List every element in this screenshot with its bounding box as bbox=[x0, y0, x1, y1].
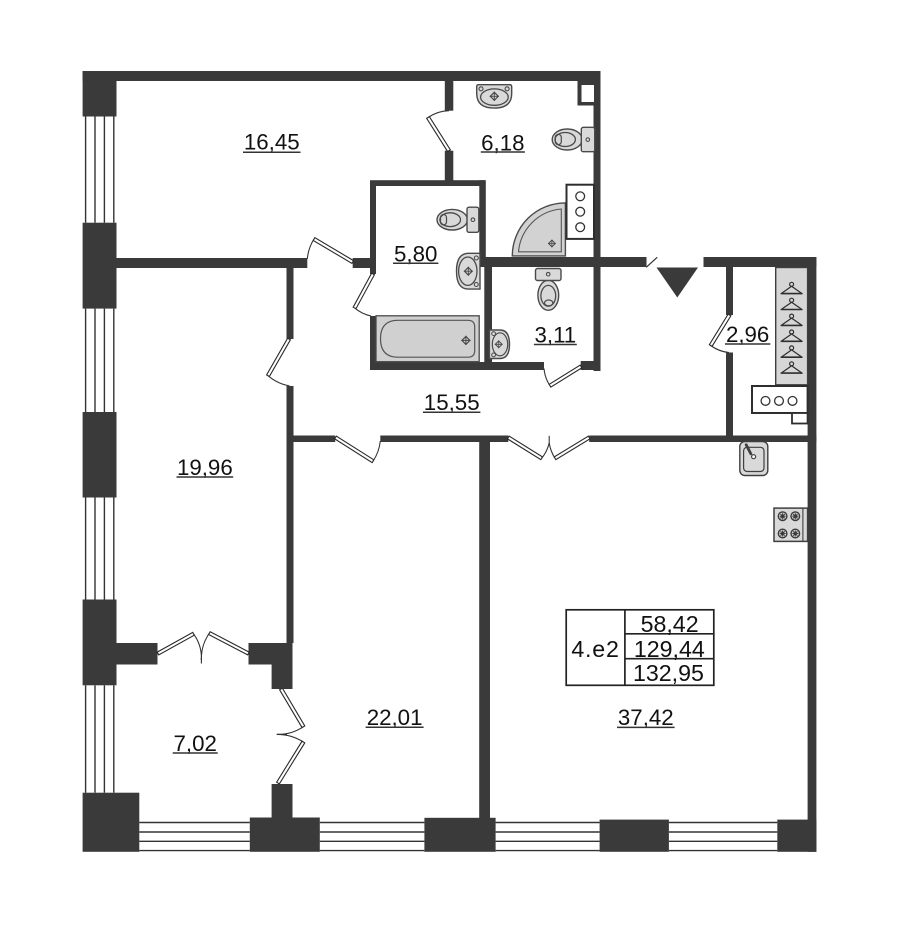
svg-text:15,55: 15,55 bbox=[424, 390, 480, 415]
svg-text:37,42: 37,42 bbox=[618, 705, 674, 730]
svg-text:4.e2: 4.e2 bbox=[571, 636, 619, 662]
svg-text:22,01: 22,01 bbox=[367, 705, 423, 730]
svg-text:129,44: 129,44 bbox=[634, 636, 705, 662]
svg-text:132,95: 132,95 bbox=[633, 660, 704, 686]
svg-text:58,42: 58,42 bbox=[641, 611, 699, 637]
svg-text:16,45: 16,45 bbox=[244, 130, 300, 155]
svg-text:19,96: 19,96 bbox=[177, 455, 233, 480]
